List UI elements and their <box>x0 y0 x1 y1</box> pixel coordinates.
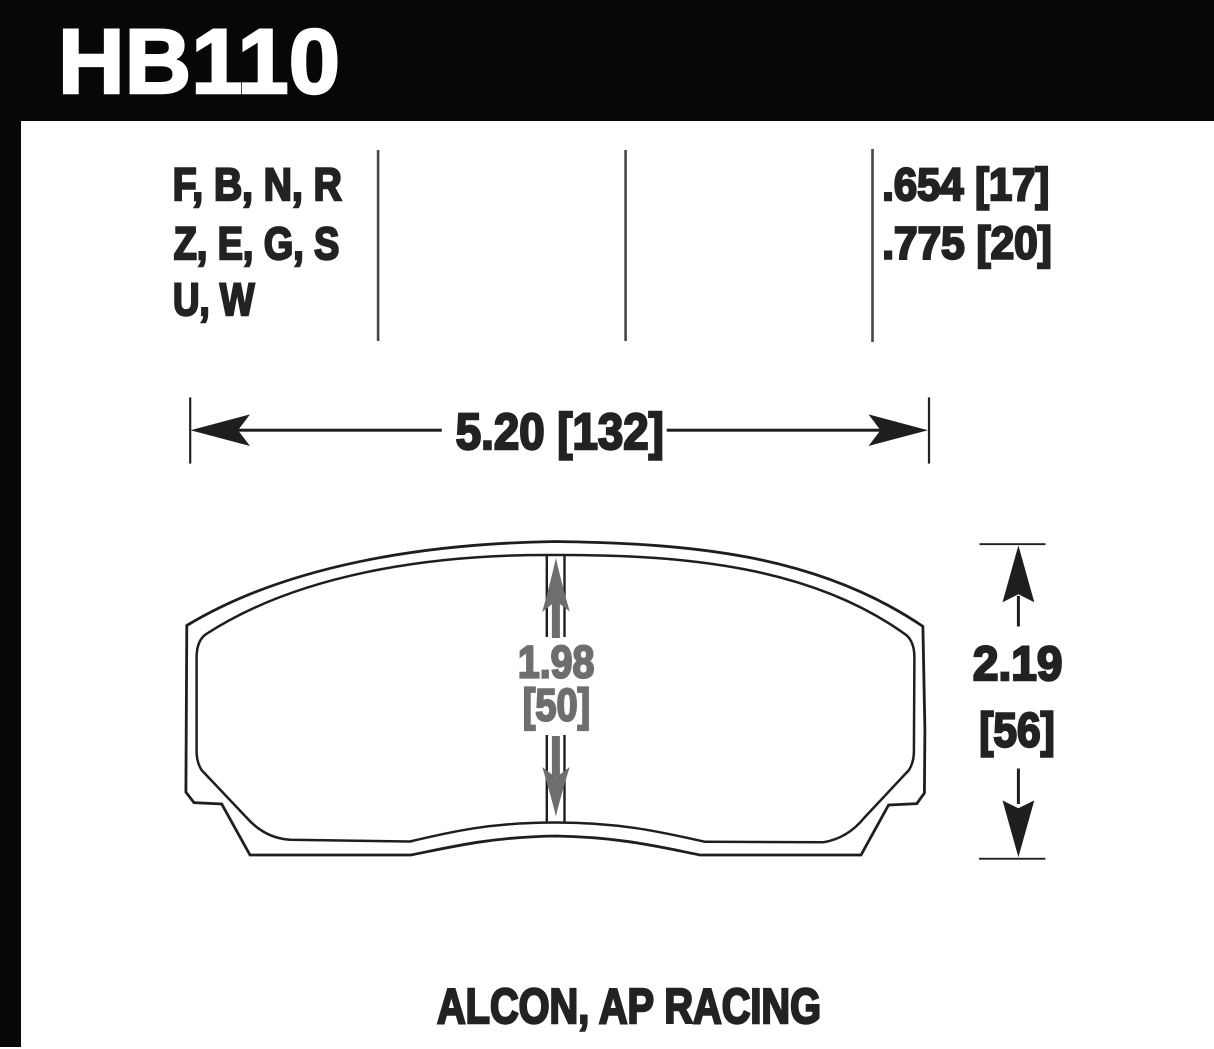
svg-text:2.19: 2.19 <box>973 638 1063 691</box>
svg-text:ALCON, AP RACING: ALCON, AP RACING <box>437 980 821 1034</box>
svg-text:[50]: [50] <box>523 680 591 731</box>
svg-text:Z, E, G, S: Z, E, G, S <box>174 218 339 269</box>
svg-text:5.20 [132]: 5.20 [132] <box>456 403 664 460</box>
svg-text:[56]: [56] <box>979 704 1055 757</box>
svg-text:.775 [20]: .775 [20] <box>882 217 1052 268</box>
svg-text:F, B, N, R: F, B, N, R <box>173 159 342 210</box>
svg-text:U, W: U, W <box>173 274 255 325</box>
svg-text:HB110: HB110 <box>58 11 340 113</box>
svg-text:.654 [17]: .654 [17] <box>882 159 1049 210</box>
